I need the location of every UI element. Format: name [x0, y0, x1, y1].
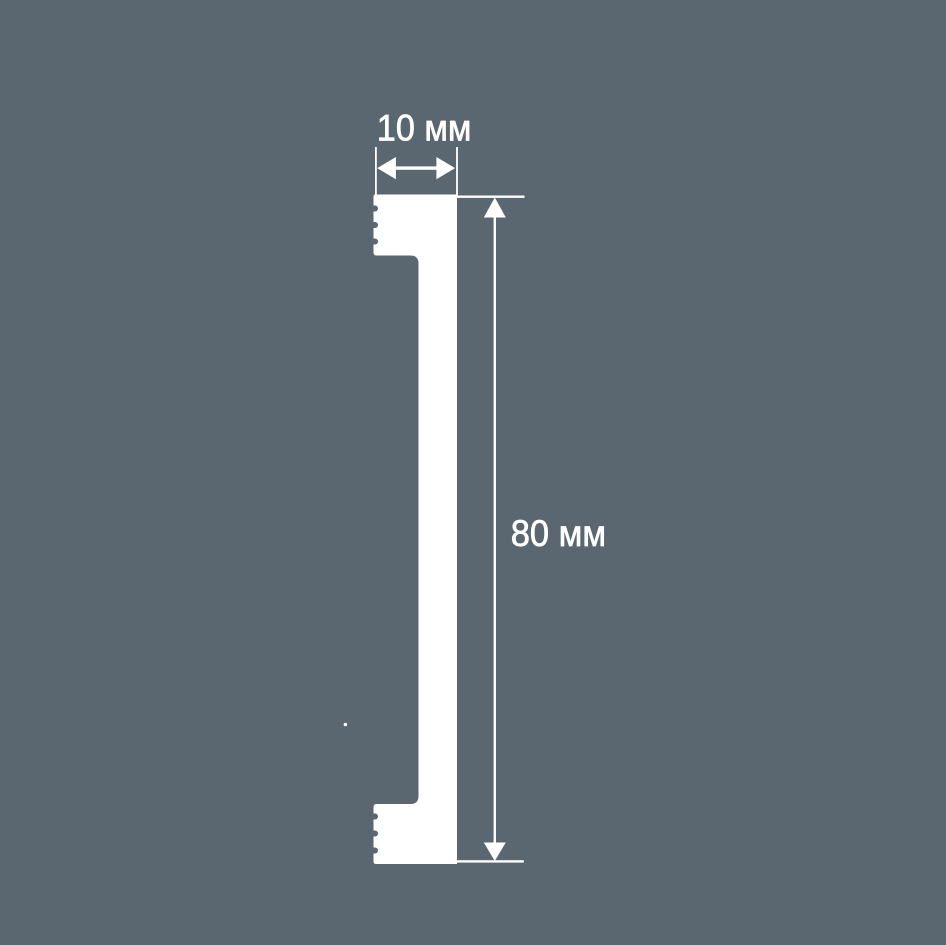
svg-text:10 мм: 10 мм	[377, 107, 472, 148]
svg-text:80 мм: 80 мм	[511, 513, 606, 554]
